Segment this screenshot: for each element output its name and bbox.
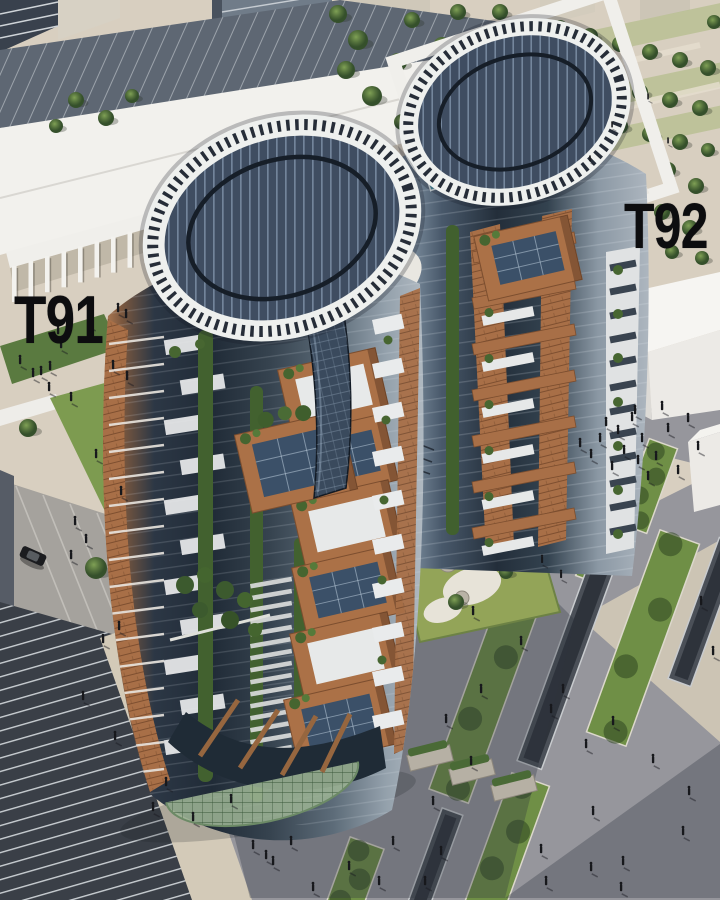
scene-render — [0, 0, 720, 900]
architectural-render: T91 T92 — [0, 0, 720, 900]
tower-label-t91: T91 — [14, 286, 103, 354]
tree — [672, 52, 692, 68]
tree — [701, 143, 719, 157]
vine-strip — [446, 225, 459, 535]
person — [677, 465, 685, 481]
vine-strip — [198, 330, 213, 782]
tree — [700, 60, 720, 76]
tree — [19, 419, 42, 437]
tree — [450, 4, 470, 20]
tower-label-t92: T92 — [624, 194, 708, 258]
tree — [672, 134, 692, 150]
